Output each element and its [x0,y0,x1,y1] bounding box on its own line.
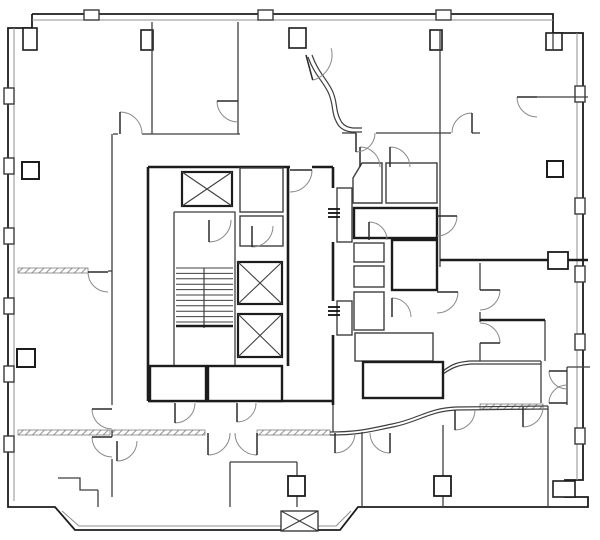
window-mullion-right [575,428,585,444]
room-outline-bold [363,362,443,398]
floor-plan-svg [0,0,600,540]
hatched-wall [18,430,110,435]
column [17,349,35,367]
corner-pilaster [546,33,562,50]
room-outline [354,243,384,262]
corner-pilaster [141,30,153,50]
room-outline [355,333,433,361]
room-outline [240,168,283,212]
window-mullion-top [84,10,99,20]
hatched-wall [18,268,88,273]
room-outline-bold [208,366,282,401]
window-mullion-right [575,86,585,102]
window-mullion-right [575,334,585,350]
window-mullion-left [4,298,14,314]
floor-background [0,0,600,540]
window-mullion-top [258,10,273,20]
hatched-wall [257,430,330,435]
service-chase [434,476,451,496]
room-outline-bold [150,366,206,401]
column [547,161,563,177]
column [22,162,39,179]
window-mullion-right [575,266,585,282]
room-outline [386,163,437,203]
room-outline-bold [354,208,437,238]
corner-pilaster [289,28,306,48]
window-mullion-top [436,10,451,20]
window-mullion-left [4,158,14,174]
corner-pilaster [23,28,37,50]
room-outline [354,292,384,330]
window-mullion-left [4,436,14,452]
service-chase [288,476,305,496]
room-outline [240,216,283,246]
window-mullion-left [4,88,14,104]
window-mullion-left [4,228,14,244]
window-mullion-left [4,366,14,382]
room-outline [337,188,352,242]
room-outline-bold [392,240,437,290]
wall-window-connector [548,252,568,269]
hatched-wall [112,430,205,435]
corner-pilaster [553,481,575,497]
window-mullion-right [575,198,585,214]
floor-plan-page [0,0,600,540]
floor-plan-drawing [0,0,600,540]
room-outline [354,266,384,287]
